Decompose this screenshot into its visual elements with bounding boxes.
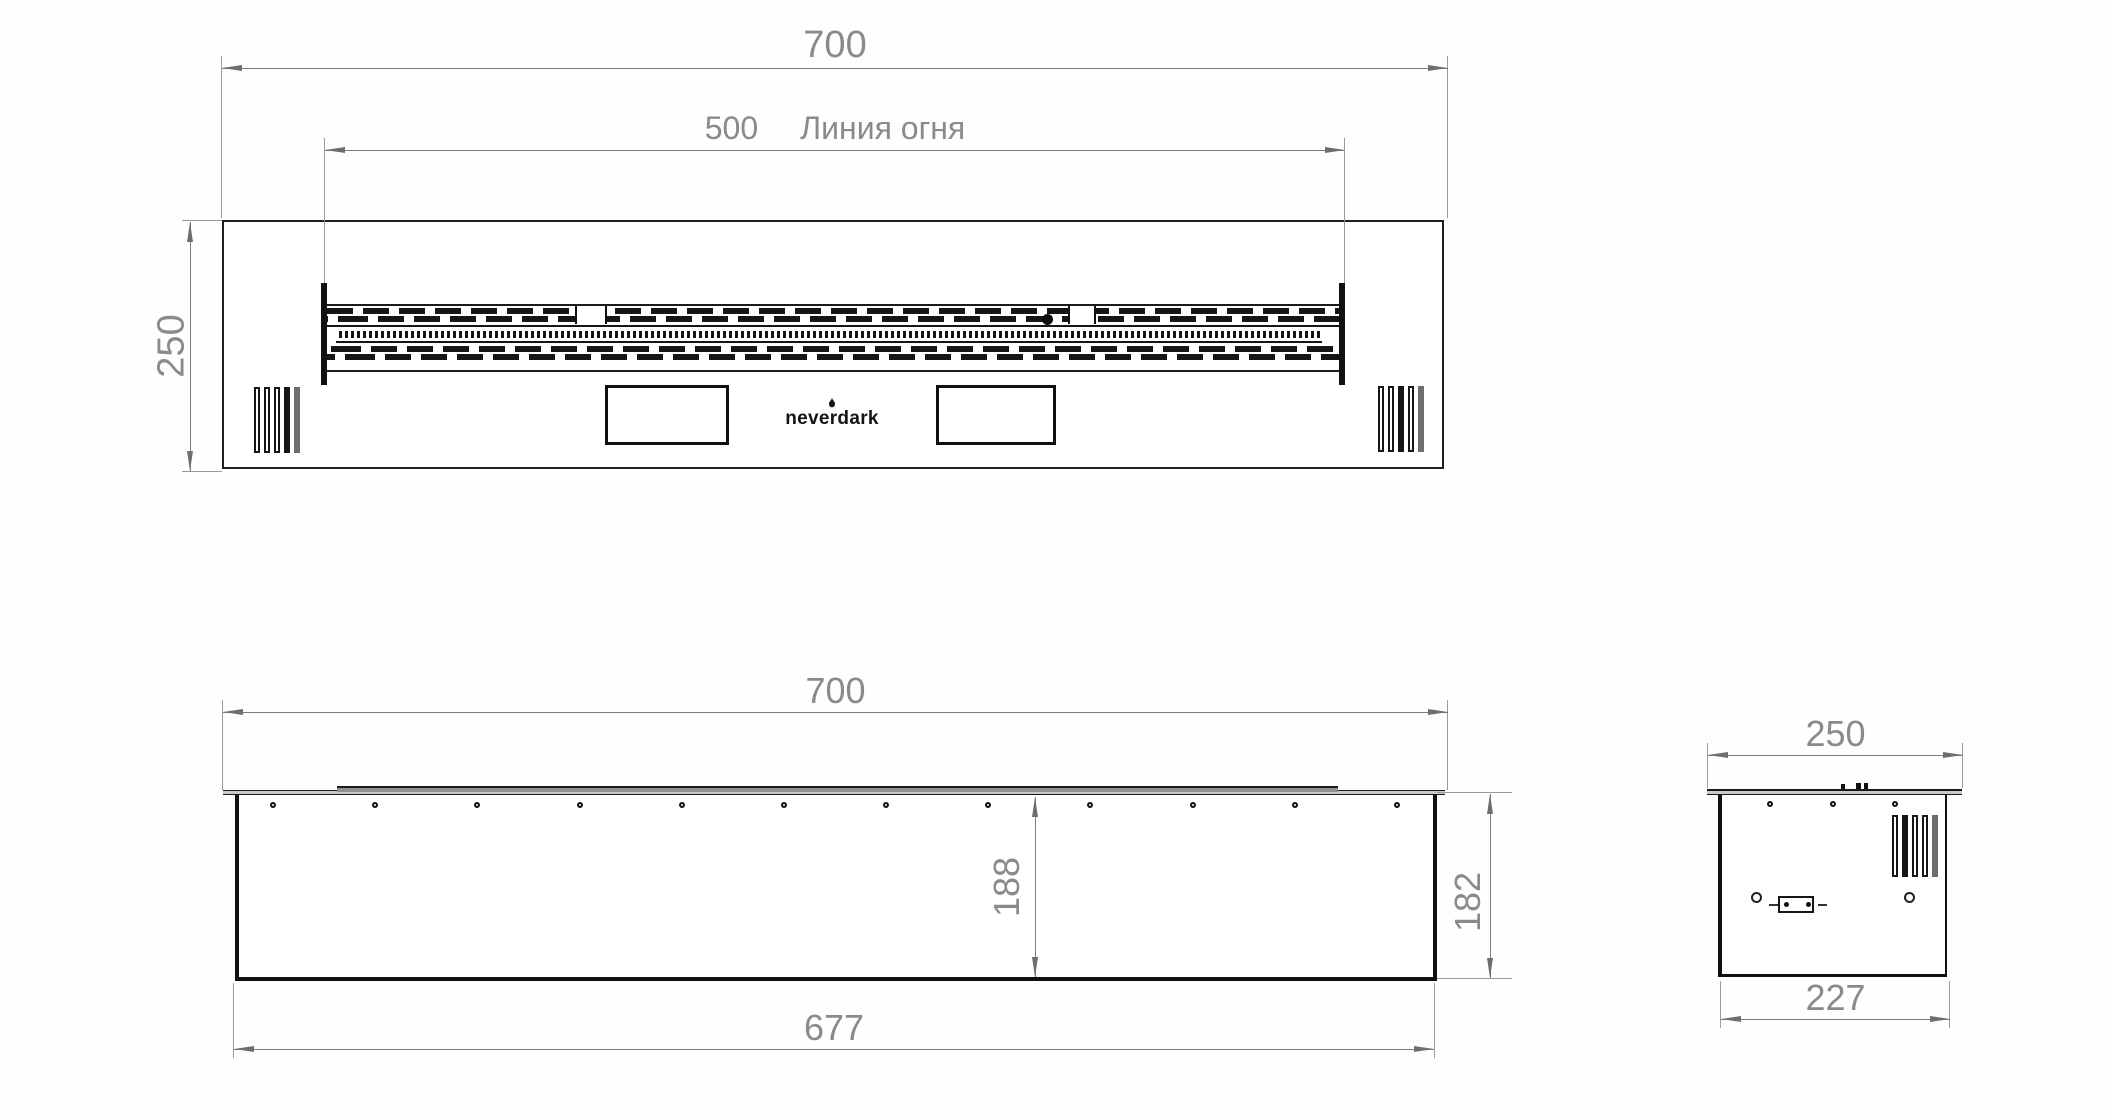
connector-tick [1818,904,1827,906]
dim-side-depth [1708,755,1963,756]
vent-slat [1922,815,1928,877]
lid-tab [1864,783,1868,789]
mounting-hole [1904,892,1915,903]
mounting-hole [1751,892,1762,903]
drawing-canvas: 700 500 Линия огня 250 [0,0,2112,1114]
vent-slat [1912,815,1918,877]
vent-grille-side [1892,815,1938,877]
vent-slat [1902,815,1908,877]
lid-tab [1856,783,1861,789]
connector-pin [1806,902,1811,907]
connector-pin [1784,902,1789,907]
screw-icon [1767,801,1773,807]
dim-label-side-depth: 250 [1708,713,1963,755]
screw-icon [1892,801,1898,807]
dim-label-bottom-depth: 227 [1721,977,1950,1019]
vent-slat [1932,815,1938,877]
screw-icon [1830,801,1836,807]
side-view: 250 [0,0,2112,1114]
lid-tab [1841,784,1845,789]
connector-tick [1769,904,1778,906]
vent-slat [1892,815,1898,877]
dim-bottom-depth [1721,1019,1950,1020]
